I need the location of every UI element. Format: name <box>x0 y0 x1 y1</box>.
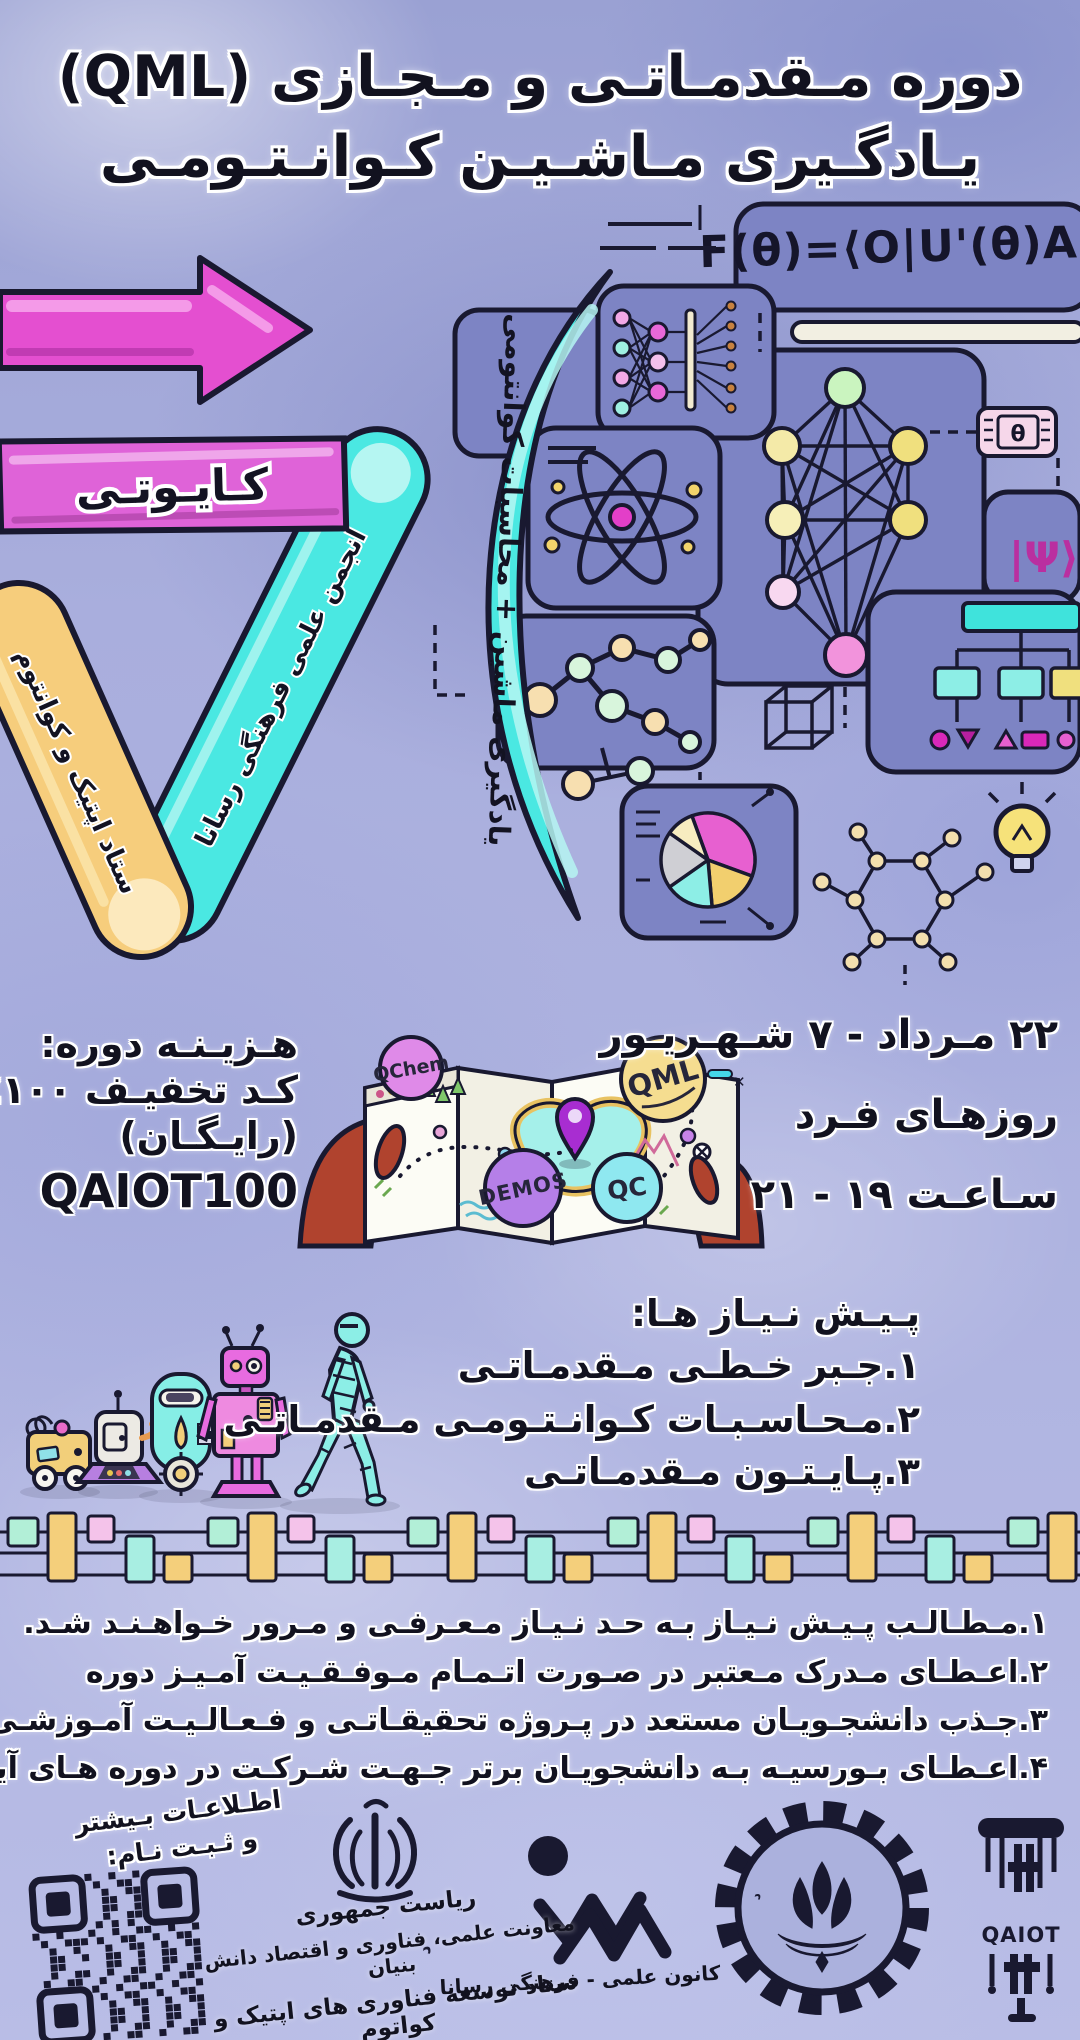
hex-network-icon <box>814 824 993 970</box>
atom-icon <box>528 428 720 608</box>
note-3: ۳.جـذب دانشجـویـان مستعد در پـروژه تحقیق… <box>0 1703 1048 1738</box>
quantum-circuit-divider <box>0 1513 1080 1582</box>
poster-title-line1: دوره مـقدمـاتـی و مـجـازی (QML) <box>0 44 1080 110</box>
lightbulb-icon <box>989 782 1055 871</box>
cost-heading: هـزیـنـه دوره: <box>40 1022 298 1066</box>
pie-chart-icon <box>622 786 796 938</box>
quantum-formula: F(θ)=⟨O|U'(θ)A <box>699 217 1079 278</box>
qaiot-band-label: کـایـوتـی <box>75 459 269 515</box>
hero-illustration: F(θ)=⟨O|U'(θ)A <box>0 204 1080 985</box>
cube-icon <box>766 686 832 748</box>
poster-title-line2: یـادگـیری مـاشـیـن کـوانـتـومـی <box>0 124 1080 190</box>
schedule-days: روزهـای فـرد <box>795 1092 1058 1138</box>
schedule-time: سـاعـت ۱۹ - ۲۱ <box>751 1172 1058 1218</box>
schedule-dates: ۲۲ مـرداد - ۷ شـهـریـور <box>600 1012 1058 1058</box>
note-4: ۴.اعـطـای بـورسیـه بـه دانشجویـان برتر ج… <box>0 1751 1048 1786</box>
qaiot-logo-text: QAIOT <box>981 1923 1060 1947</box>
note-1: ۱.مـطـالـب پـیـش نـیـاز بـه حـد نـیـاز م… <box>23 1606 1048 1641</box>
cost-discount: کـد تخفیـف ۱۰۰٪ <box>0 1068 298 1112</box>
gov-emblem-icon <box>336 1802 414 1900</box>
qaiot-band: کـایـوتـی <box>0 432 346 537</box>
prereq-heading: پـیـش نـیـاز هـا: <box>631 1292 920 1335</box>
cost-free: (رایـگـان) <box>119 1114 298 1158</box>
map-illustration: ✕ <box>300 1037 762 1246</box>
arrow-right-icon <box>0 258 310 402</box>
flowchart-icon <box>868 592 1080 772</box>
close-icon: ✕ <box>733 1073 746 1091</box>
prereq-item-2: ۲.مـحـاسـبـات کـوانـتـومـی مـقدمـاتـی <box>223 1398 920 1441</box>
qr-code <box>28 1866 206 2040</box>
theta-symbol: θ <box>1010 422 1025 447</box>
course-poster: F(θ)=⟨O|U'(θ)A <box>0 0 1080 2040</box>
psi-ket: |Ψ⟩ <box>1009 533 1079 582</box>
theta-card-icon: θ <box>978 408 1056 456</box>
discount-code: QAIOT100 <box>40 1164 298 1218</box>
prereq-item-1: ۱.جـبر خـطـی مـقدمـاتـی <box>458 1344 920 1387</box>
qaiot-logo: QAIOT <box>978 1818 1064 2022</box>
psi-panel: |Ψ⟩ <box>984 492 1080 602</box>
prereq-item-3: ۳.پـایـتـون مـقدمـاتـی <box>524 1450 920 1493</box>
note-2: ۲.اعـطـای مـدرک مـعتبر در صـورت اتـمـام … <box>86 1655 1048 1690</box>
map-label-qc: QC <box>605 1171 648 1205</box>
